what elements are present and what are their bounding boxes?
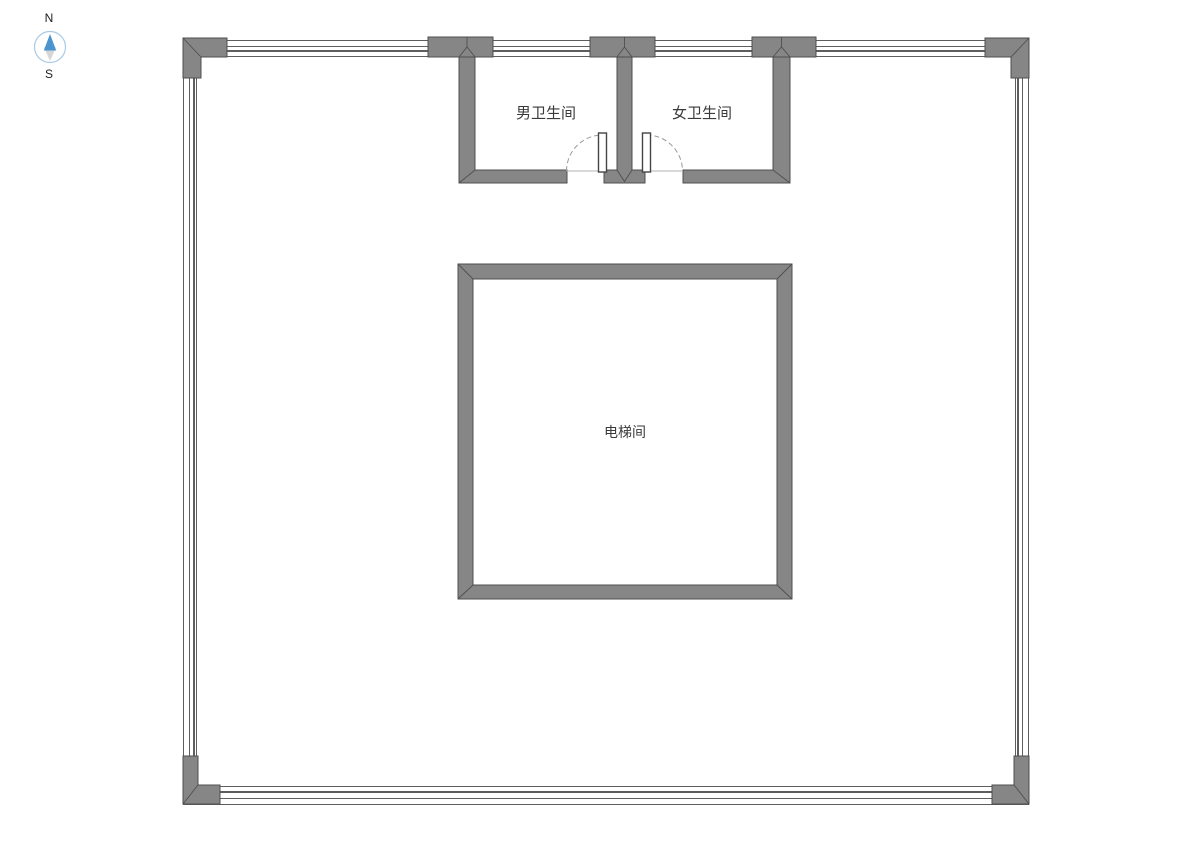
womens-door-leaf [643,133,651,172]
womens-door-swing-arc [647,135,683,171]
corner-column-top-right [985,38,1029,78]
compass: N S [35,11,66,81]
corner-column-bottom-left [183,756,220,804]
mens-restroom-label: 男卫生间 [516,105,576,122]
womens-restroom-label: 女卫生间 [672,104,732,122]
wall-junction-block-center [590,37,655,57]
elevator-room: 电梯间 [458,264,792,599]
restroom-divider-wall [604,57,645,183]
mens-door-leaf [599,133,607,172]
wall-junction-block-right [752,37,816,57]
corner-column-bottom-right [992,756,1029,804]
wall-right [1016,40,1029,804]
compass-south-label: S [45,67,53,81]
womens-restroom-door [643,133,683,172]
restrooms: 男卫生间 女卫生间 [459,57,790,183]
mens-restroom-door [567,133,607,172]
floor-plan-canvas: N S [0,0,1191,842]
mens-door-swing-arc [567,135,603,171]
wall-junction-block-left [428,37,493,57]
compass-north-label: N [45,11,54,25]
elevator-room-label: 电梯间 [604,424,646,440]
wall-left [184,40,197,804]
wall-bottom [183,787,1029,805]
corner-column-top-left [183,38,227,78]
